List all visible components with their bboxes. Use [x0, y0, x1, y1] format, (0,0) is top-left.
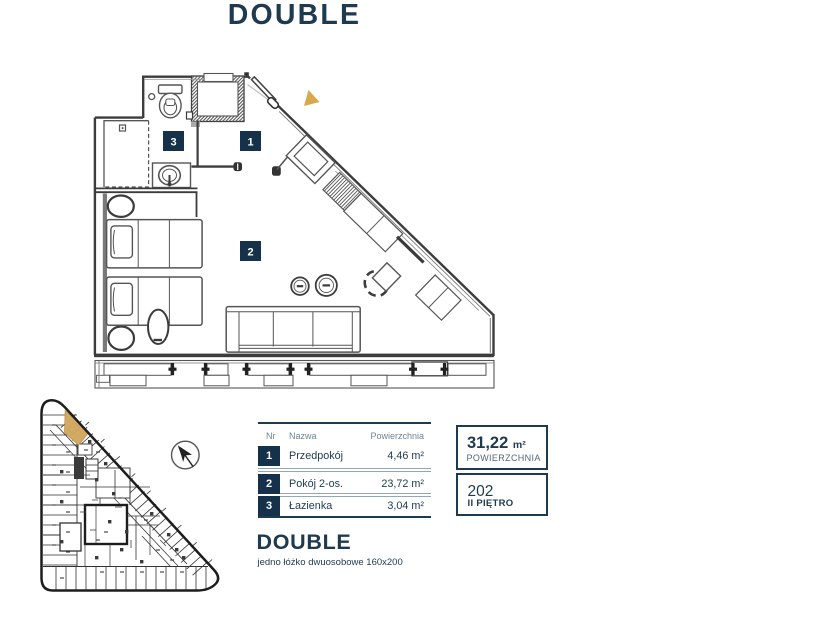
svg-text:2: 2: [247, 247, 253, 259]
svg-text:3: 3: [170, 137, 176, 149]
svg-text:1: 1: [247, 137, 253, 149]
